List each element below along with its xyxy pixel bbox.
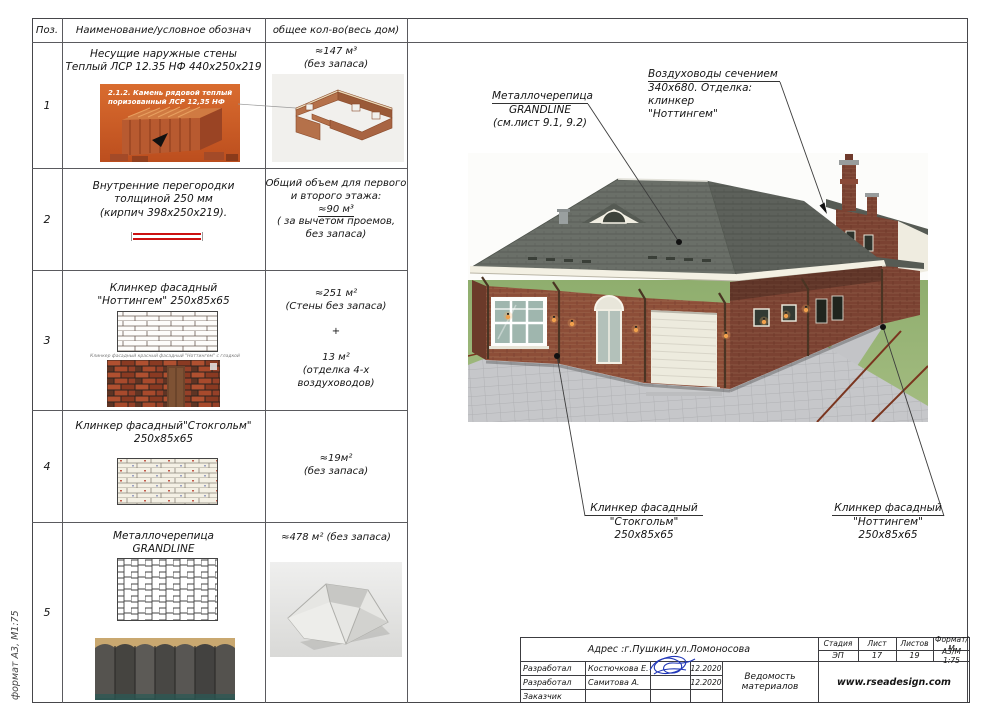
row-pos: 4 <box>32 410 62 522</box>
qty-line: ≈19м² <box>320 453 353 464</box>
callout-line: "Ноттингем" <box>648 108 718 120</box>
row-qty: ≈147 м³ (без запаса) <box>265 46 407 72</box>
signature <box>646 654 698 678</box>
brick-product-photo: 2.1.2. Камень рядовой теплый поризованны… <box>100 84 240 166</box>
name-line: GRANDLINE <box>133 543 195 555</box>
callout-line: (см.лист 9.1, 9.2) <box>493 117 587 129</box>
metal-tile-photo <box>95 638 235 704</box>
tb-sheet-label: Лист <box>858 637 896 650</box>
callout-line: GRANDLINE <box>509 104 571 116</box>
tb-stage-value: ЭП <box>818 650 858 661</box>
photo-caption: Клинкер фасадный красный фасадный "Нотти… <box>90 355 240 360</box>
col-header-qty: общее кол-во(весь дом) <box>265 18 407 42</box>
grid-line <box>32 42 968 43</box>
callout-line: Клинкер фасадный <box>585 502 703 516</box>
walls-3d-thumbnail <box>272 74 404 166</box>
qty-line: без запаса) <box>306 229 366 240</box>
callout-line: 340х680. Отделка: клинкер <box>648 82 752 107</box>
name-line: Теплый ЛСР 12.35 НФ 440х250х219 <box>65 61 261 73</box>
tb-sheets-label: Листов <box>896 637 933 650</box>
qty-line: ≈147 м³ <box>315 46 357 57</box>
callout-line: Клинкер фасадный <box>832 502 944 516</box>
row-qty: ≈251 м² (Стены без запаса) + 13 м² (отде… <box>265 288 407 390</box>
row-pos: 2 <box>32 168 62 270</box>
row-qty: ≈478 м² (без запаса) <box>265 532 407 545</box>
qty-line: (Стены без запаса) <box>286 301 387 312</box>
grid-line <box>32 168 407 169</box>
name-line: Клинкер фасадный"Стокгольм" <box>75 420 251 432</box>
qty-line: (без запаса) <box>304 466 368 477</box>
qty-line: Общий объем для первого <box>266 178 407 189</box>
photo-caption: 2.1.2. Камень рядовой теплый <box>108 89 232 97</box>
roof-3d-thumbnail <box>270 562 402 661</box>
name-line: 250х85х65 <box>134 433 193 445</box>
grid-line <box>62 18 63 703</box>
tb-website: www.rseadesign.com <box>818 661 970 703</box>
clinker-photo <box>107 360 220 411</box>
name-line: толщиной 250 мм <box>114 193 213 205</box>
qty-line: 13 м² <box>322 352 349 363</box>
qty-line: ≈251 м² <box>315 288 357 299</box>
row-name: Внутренние перегородки толщиной 250 мм (… <box>62 180 265 220</box>
qty-line: (без запаса) <box>304 59 368 70</box>
name-line: Несущие наружные стены <box>90 48 237 60</box>
qty-line: + <box>332 326 340 337</box>
qty-line: ( за вычетом проемов, <box>277 216 395 227</box>
tb-role: Разработал <box>520 675 585 689</box>
callout-line: "Стокгольм" 250х85х65 <box>610 516 679 541</box>
grid-line <box>32 270 407 271</box>
name-line: Внутренние перегородки <box>93 180 235 192</box>
row-pos: 5 <box>32 522 62 703</box>
tb-name: Самитова А. <box>585 675 650 689</box>
qty-line: и второго этажа: <box>291 191 381 202</box>
row-name: Клинкер фасадный "Ноттингем" 250х85х65 <box>62 282 265 309</box>
row-name: Металлочерепица GRANDLINE <box>62 530 265 557</box>
photo-caption: поризованный ЛСР 12,35 НФ <box>108 98 225 106</box>
name-line: Металлочерепица <box>113 530 214 542</box>
tb-role: Разработал <box>520 661 585 675</box>
house-render <box>468 153 928 426</box>
qty-line: ≈478 м² (без запаса) <box>281 532 391 543</box>
callout-line: "Ноттингем" 250х85х65 <box>853 516 923 541</box>
row-pos: 3 <box>32 270 62 410</box>
partition-symbol <box>133 233 201 240</box>
col-header-pos: Поз. <box>32 18 62 42</box>
name-line: "Ноттингем" 250х85х65 <box>97 295 229 307</box>
callout-ducts: Воздуховоды сечением 340х680. Отделка: к… <box>648 68 780 121</box>
grid-line <box>407 18 408 703</box>
tb-doc-title: Ведомость материалов <box>722 661 818 703</box>
row-qty: ≈19м² (без запаса) <box>265 453 407 479</box>
tb-role: Заказчик <box>520 689 585 703</box>
tb-format-value: А3/М 1:75 <box>933 650 970 661</box>
col-header-name: Наименование/условное обознач <box>62 18 265 42</box>
format-side-label: формат А3, М1:75 <box>10 550 21 700</box>
callout-nottingham: Клинкер фасадный "Ноттингем" 250х85х65 <box>832 502 944 542</box>
row-name: Несущие наружные стены Теплый ЛСР 12.35 … <box>62 48 265 75</box>
tb-name: Костючкова Е. <box>585 661 650 675</box>
callout-grandline: Металлочерепица GRANDLINE (см.лист 9.1, … <box>492 90 588 130</box>
qty-line: воздуховодов) <box>297 378 374 389</box>
brick-hatch-symbol <box>117 458 218 509</box>
qty-line: ≈90 м³ <box>318 204 354 217</box>
callout-line: Металлочерепица <box>492 90 588 104</box>
name-line: (кирпич 398х250х219). <box>100 207 227 219</box>
tb-sheets-value: 19 <box>896 650 933 661</box>
brick-hatch-symbol <box>117 311 218 356</box>
row-name: Клинкер фасадный"Стокгольм" 250х85х65 <box>62 420 265 447</box>
row-qty: Общий объем для первого и второго этажа:… <box>265 178 407 242</box>
row-pos: 1 <box>32 42 62 168</box>
callout-line: Воздуховоды сечением <box>648 68 780 82</box>
name-line: Клинкер фасадный <box>110 282 218 294</box>
callout-stockholm: Клинкер фасадный "Стокгольм" 250х85х65 <box>585 502 703 542</box>
grid-line <box>32 522 407 523</box>
sheet-page: формат А3, М1:75 Поз. Наименование/услов… <box>0 0 990 718</box>
tb-stage-label: Стадия <box>818 637 858 650</box>
metal-tile-hatch-symbol <box>117 558 218 625</box>
tb-sheet-value: 17 <box>858 650 896 661</box>
qty-line: (отделка 4-х <box>303 365 370 376</box>
